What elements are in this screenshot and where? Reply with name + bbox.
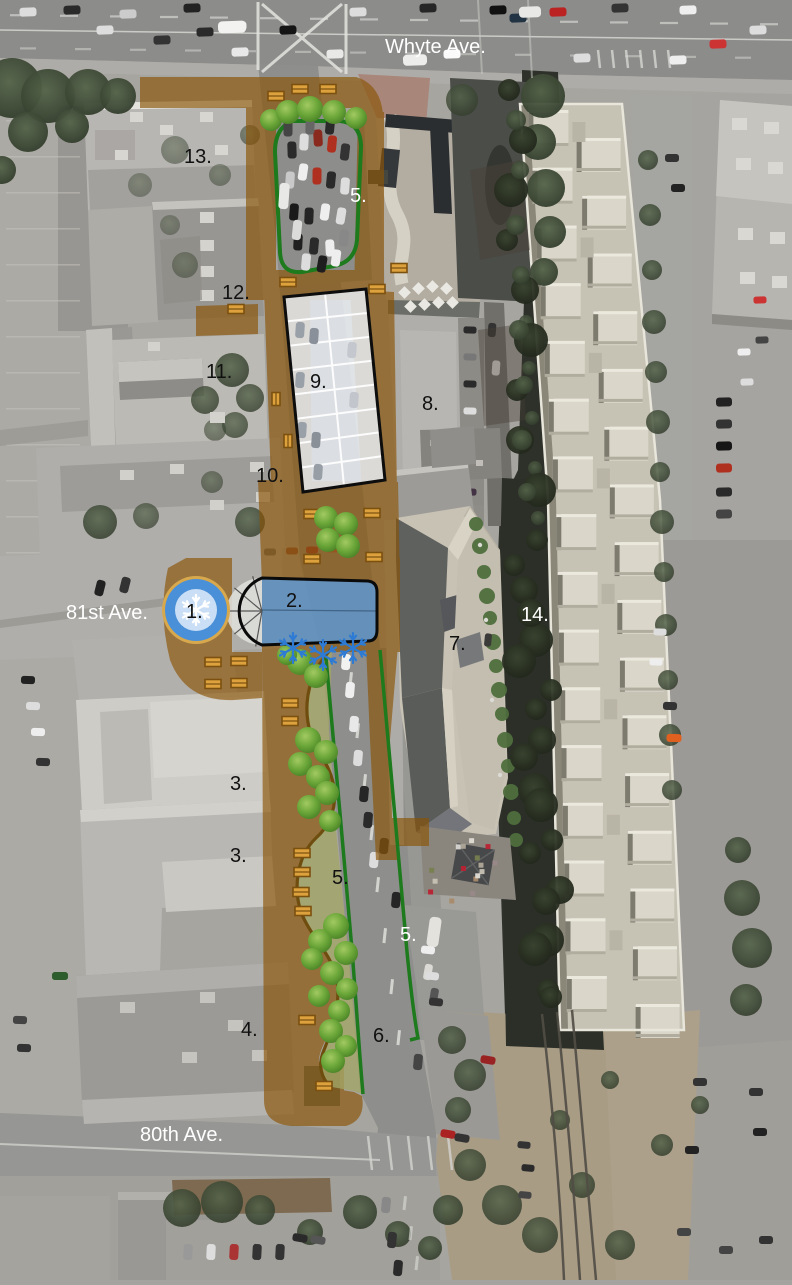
svg-text:3.: 3. <box>230 845 247 867</box>
svg-text:1.: 1. <box>186 601 203 623</box>
svg-text:7.: 7. <box>449 633 466 655</box>
svg-text:14.: 14. <box>521 604 549 626</box>
svg-text:5.: 5. <box>350 185 367 207</box>
svg-text:81st Ave.: 81st Ave. <box>66 602 148 624</box>
svg-text:5.: 5. <box>400 924 417 946</box>
svg-text:10.: 10. <box>256 465 284 487</box>
svg-text:3.: 3. <box>230 773 247 795</box>
svg-text:11.: 11. <box>206 361 232 383</box>
svg-text:2.: 2. <box>286 590 303 612</box>
svg-text:80th Ave.: 80th Ave. <box>140 1124 223 1146</box>
svg-text:12.: 12. <box>222 282 250 304</box>
svg-text:4.: 4. <box>241 1019 258 1041</box>
svg-text:Whyte Ave.: Whyte Ave. <box>385 36 486 58</box>
svg-text:13.: 13. <box>184 146 212 168</box>
svg-text:8.: 8. <box>422 393 439 415</box>
svg-text:5.: 5. <box>332 867 349 889</box>
svg-text:6.: 6. <box>373 1025 390 1047</box>
svg-text:9.: 9. <box>310 371 327 393</box>
